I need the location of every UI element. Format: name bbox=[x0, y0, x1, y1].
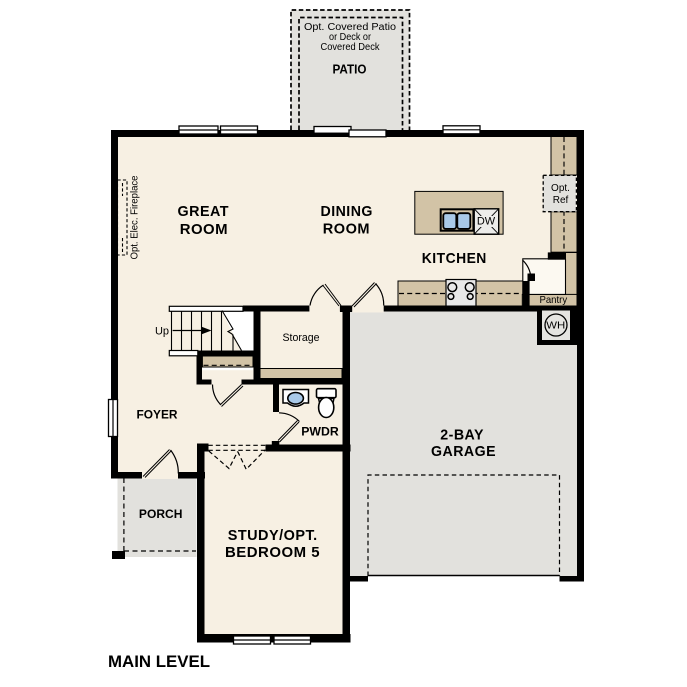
svg-text:STUDY/OPT.: STUDY/OPT. bbox=[228, 527, 318, 544]
svg-text:Storage: Storage bbox=[283, 332, 320, 344]
svg-text:ROOM: ROOM bbox=[323, 221, 370, 238]
svg-text:BEDROOM 5: BEDROOM 5 bbox=[225, 544, 320, 561]
svg-text:GREAT: GREAT bbox=[178, 203, 230, 220]
svg-text:2-BAY: 2-BAY bbox=[440, 427, 484, 444]
svg-text:Ref: Ref bbox=[553, 195, 569, 206]
svg-text:Opt.: Opt. bbox=[551, 183, 570, 194]
svg-text:PORCH: PORCH bbox=[139, 507, 183, 521]
svg-text:FOYER: FOYER bbox=[137, 407, 178, 421]
svg-text:Pantry: Pantry bbox=[539, 294, 567, 306]
svg-text:PATIO: PATIO bbox=[333, 62, 367, 77]
svg-text:KITCHEN: KITCHEN bbox=[422, 250, 487, 267]
svg-text:PWDR: PWDR bbox=[301, 425, 339, 439]
svg-text:ROOM: ROOM bbox=[180, 221, 228, 238]
svg-text:GARAGE: GARAGE bbox=[431, 443, 496, 460]
svg-text:WH: WH bbox=[546, 320, 565, 332]
svg-text:Up: Up bbox=[155, 325, 169, 337]
svg-text:DW: DW bbox=[477, 215, 496, 227]
svg-text:Opt. Elec. Fireplace: Opt. Elec. Fireplace bbox=[130, 175, 141, 259]
svg-text:Covered Deck: Covered Deck bbox=[321, 42, 381, 53]
svg-text:MAIN LEVEL: MAIN LEVEL bbox=[108, 653, 210, 671]
svg-text:DINING: DINING bbox=[321, 203, 373, 220]
